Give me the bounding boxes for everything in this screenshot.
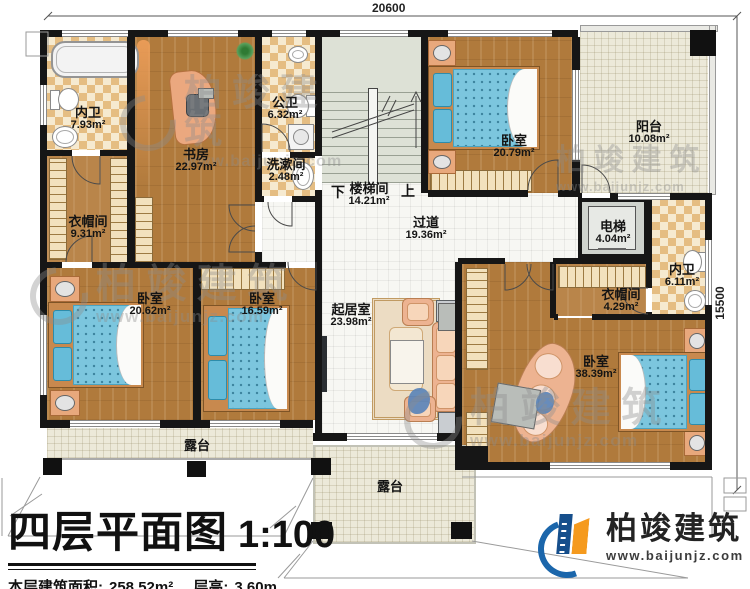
area-value: 258.52m² — [109, 579, 173, 589]
height-label: 层高: — [193, 579, 228, 589]
plan-title: 四层平面图 — [8, 498, 228, 560]
company-name: 柏竣建筑 — [606, 512, 744, 546]
stair-rail — [332, 92, 421, 148]
company-website: www.baijunjz.com — [606, 548, 744, 563]
terrace-center-label: 露台 — [377, 480, 403, 494]
room-label-dianti: 电梯 4.04m² — [596, 220, 631, 245]
title-underline — [8, 563, 256, 570]
company-logo-icon — [538, 512, 598, 574]
title-block: 四层平面图 1:100 本层建筑面积:258.52m² 层高:3.60m — [8, 498, 335, 589]
room-label-yimaojian-east: 衣帽间 4.29m² — [601, 288, 640, 313]
room-label-neiwei-east: 内卫 6.11m² — [665, 263, 699, 288]
door-arcs — [66, 124, 648, 314]
room-label-woshi-south: 卧室 16.59m² — [242, 292, 283, 317]
room-label-loutijian: 楼梯间 14.21m² — [349, 182, 390, 207]
room-label-woshi-sw: 卧室 20.62m² — [130, 292, 171, 317]
room-label-gongwei: 公卫 6.32m² — [268, 96, 303, 121]
dimension-lines — [44, 12, 741, 494]
room-label-yimaojian-west: 衣帽间 9.31m² — [68, 215, 107, 240]
terrace-left-label: 露台 — [184, 439, 210, 453]
dimension-right: 15500 — [713, 281, 727, 325]
room-label-woshi-master: 卧室 38.39m² — [576, 355, 617, 380]
room-label-neiwei-top: 内卫 7.93m² — [71, 106, 106, 131]
stair-down-label: 下 — [331, 182, 345, 202]
company-logo: 柏竣建筑 www.baijunjz.com — [538, 512, 744, 574]
dimension-top: 20600 — [372, 1, 405, 15]
height-value: 3.60m — [234, 579, 277, 589]
room-label-xishujian: 洗漱间 2.48m² — [266, 158, 305, 183]
room-label-yangtai: 阳台 10.08m² — [629, 120, 670, 145]
plan-info: 本层建筑面积:258.52m² 层高:3.60m — [8, 576, 335, 589]
stair-up-label: 上 — [401, 181, 415, 201]
room-label-shufang: 书房 22.97m² — [176, 148, 217, 173]
room-label-guodao: 过道 19.36m² — [406, 216, 447, 241]
room-label-qijushi: 起居室 23.98m² — [331, 303, 372, 328]
floor-plan-canvas: 内卫 7.93m² 书房 22.97m² 公卫 6.32m² 洗漱间 2.48m… — [0, 0, 750, 589]
room-label-woshi-north: 卧室 20.79m² — [494, 134, 535, 159]
area-label: 本层建筑面积: — [8, 579, 103, 589]
plan-scale: 1:100 — [238, 514, 335, 557]
